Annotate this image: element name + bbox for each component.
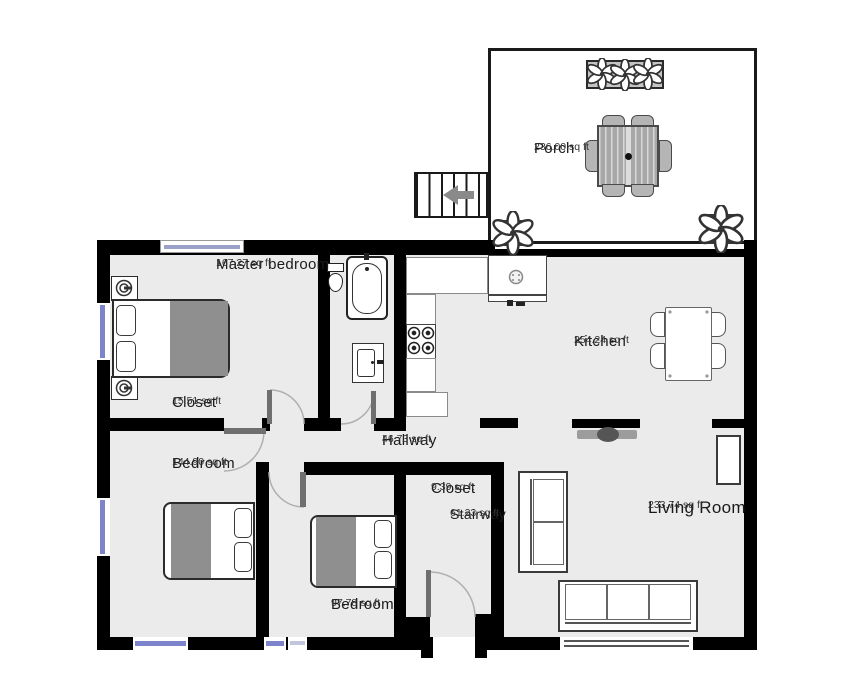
bed-blanket: [170, 301, 228, 376]
entry-jamb: [475, 614, 504, 650]
sofa-cushion: [649, 584, 691, 620]
wall-kitchen-living: [480, 418, 518, 428]
vanity-dot: [371, 361, 374, 364]
wall-top: [97, 240, 495, 255]
plant-pot: [706, 214, 736, 244]
kitchen-counter: [406, 294, 436, 325]
outdoor-chair-icon: [631, 184, 654, 197]
entry-jamb: [406, 617, 430, 639]
bed-pillow: [234, 542, 252, 572]
wall-left: [97, 240, 110, 650]
wall-stairway-east: [491, 462, 504, 637]
loveseat-back-line: [530, 479, 532, 565]
tv-icon: [597, 427, 619, 442]
kitchen-counter: [406, 358, 436, 392]
dining-chair: [650, 312, 665, 337]
bed-pillow: [234, 508, 252, 538]
sofa-back-line: [565, 622, 691, 624]
vanity-faucet: [377, 360, 384, 364]
sofa-cushion: [565, 584, 607, 620]
bed-pillow: [374, 551, 392, 579]
window-glass: [290, 641, 305, 645]
entry-step-side: [421, 650, 433, 658]
outdoor-chair-icon: [659, 140, 672, 172]
wall-hall-north: [110, 418, 224, 431]
bed-pillow: [116, 341, 136, 372]
window-glass: [564, 645, 689, 647]
loveseat-cushion: [533, 522, 564, 565]
window-glass: [100, 305, 105, 358]
outdoor-table-umbrella-dot: [625, 153, 632, 160]
nightstand: [111, 276, 138, 301]
wall-bedroom-divider: [256, 462, 269, 637]
kitchen-sink-line: [489, 294, 546, 296]
kitchen-counter: [406, 392, 448, 417]
loveseat-cushion: [533, 479, 564, 522]
bathtub-faucet: [364, 253, 369, 260]
stairs-arrow-icon: [443, 185, 458, 205]
outdoor-chair-icon: [602, 184, 625, 197]
dining-chair: [711, 312, 726, 337]
bed-pillow: [116, 305, 136, 336]
entry-step-side: [475, 650, 487, 658]
kitchen-faucet: [516, 302, 525, 306]
window-glass: [164, 245, 240, 249]
wall-hall-north: [262, 418, 270, 431]
kitchen-counter: [406, 257, 488, 294]
nightstand: [111, 376, 138, 400]
dining-chair: [650, 343, 665, 369]
sofa-cushion: [607, 584, 649, 620]
toilet-tank: [327, 263, 344, 272]
stairs-arrow-shaft: [458, 191, 474, 199]
wall-hall-north: [374, 418, 406, 431]
dining-table: [665, 307, 712, 381]
floor-plan: Porch 236.00 sq ft Master bedroom 167.27…: [0, 0, 854, 683]
window: [560, 637, 693, 650]
wall-right: [744, 240, 757, 650]
wall-bath-kitchen: [394, 252, 406, 426]
planter-box: [586, 60, 664, 89]
bed-blanket: [316, 517, 356, 586]
bathtub-drain-dot: [365, 267, 369, 271]
window-glass: [135, 641, 186, 646]
wall-kitchen-living: [712, 419, 744, 428]
cabinet: [716, 435, 741, 485]
dining-chair: [711, 343, 726, 369]
kitchen-faucet: [507, 300, 513, 306]
plant-pot: [500, 220, 526, 246]
window-glass: [564, 640, 689, 642]
window-glass: [266, 641, 284, 646]
bed-pillow: [374, 520, 392, 548]
bed-blanket: [171, 504, 211, 578]
wall-hall-north: [304, 418, 341, 431]
stove-icon: [406, 324, 436, 359]
window-glass: [100, 500, 105, 554]
